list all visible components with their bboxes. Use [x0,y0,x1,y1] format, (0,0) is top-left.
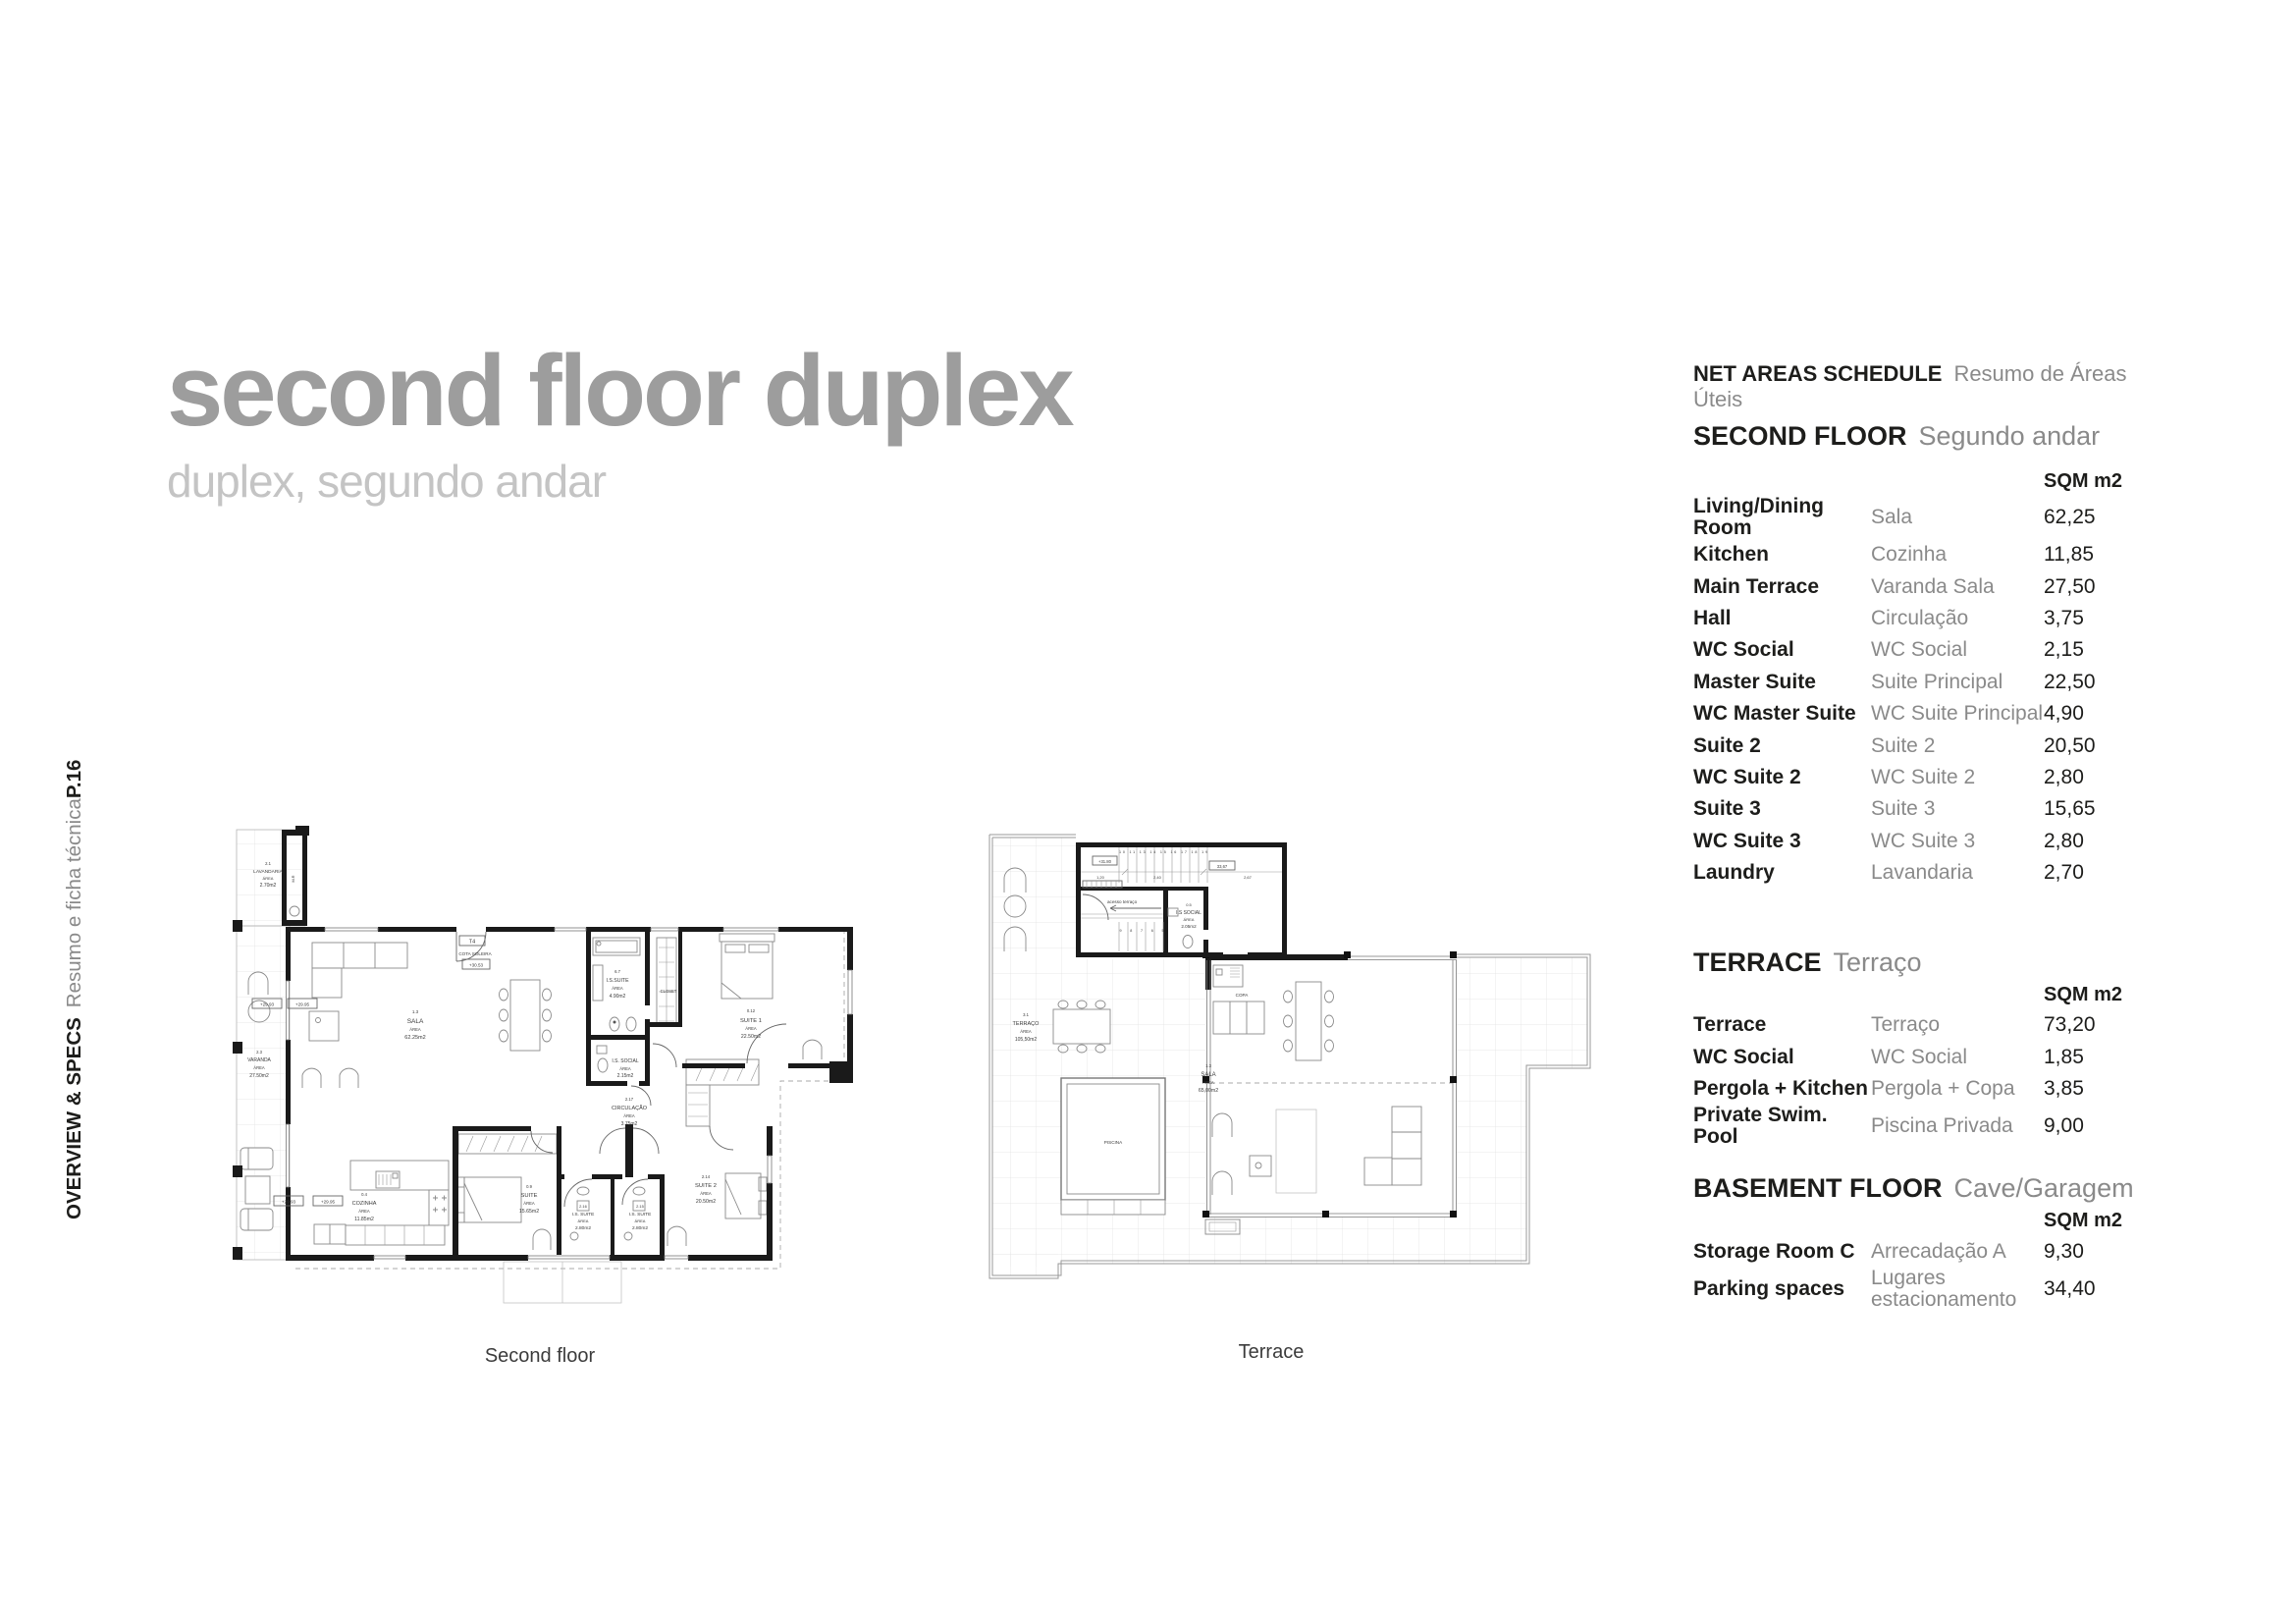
section-name-pt: Cave/Garagem [1954,1173,2134,1203]
svg-text:I.S. SOCIAL: I.S. SOCIAL [612,1058,638,1064]
row-area-value: 2,80 [2044,767,2145,788]
svg-text:ÁREA: ÁREA [409,1027,421,1032]
table-row: WC Suite 3 WC Suite 3 2,80 [1693,826,2145,857]
svg-text:0.12: 0.12 [747,1008,756,1013]
row-label-en: Private Swim. Pool [1693,1105,1871,1148]
section-header-terrace: TERRACETerraço [1693,947,2145,978]
svg-text:ÁREA: ÁREA [619,1066,631,1071]
row-label-pt: Sala [1871,507,2044,528]
svg-text:2.80m2: 2.80m2 [575,1225,591,1231]
cota-level: +30.53 [469,963,484,968]
svg-text:ÁREA: ÁREA [1020,1029,1032,1034]
stair-numbers-up: 10 11 13 14 15 16 17 18 19 [1119,850,1207,854]
svg-text:ÁREA: ÁREA [358,1209,370,1214]
row-label-pt: Circulação [1871,608,2044,629]
cota-soleira-label: COTA SOLEIRA [458,951,492,956]
basement-rows: Storage Room C Arrecadação A 9,30 Parkin… [1693,1235,2145,1310]
row-area-value: 62,25 [2044,507,2145,528]
svg-text:2.15: 2.15 [636,1204,645,1209]
svg-text:2.3: 2.3 [256,1050,262,1055]
row-label-pt: WC Suite 2 [1871,767,2044,788]
row-area-value: 9,30 [2044,1241,2145,1263]
row-area-value: 4,90 [2044,703,2145,725]
row-area-value: 2,80 [2044,831,2145,852]
section-name-pt: Segundo andar [1919,421,2101,451]
row-area-value: 27,50 [2044,576,2145,598]
svg-text:2.15m2: 2.15m2 [617,1073,634,1079]
table-row: WC Social WC Social 2,15 [1693,634,2145,666]
svg-text:SUITE 2: SUITE 2 [695,1183,717,1189]
row-label-pt: Pergola + Copa [1871,1078,2044,1100]
svg-text:2.14: 2.14 [702,1174,711,1179]
row-label-en: Laundry [1693,862,1871,884]
room-label-social: I.S SOCIAL [1176,910,1201,916]
dim-total: 33,67 [1217,864,1228,869]
level-marker: +29.95 [321,1200,336,1205]
room-label-copa: COPA [1236,993,1250,998]
row-label-pt: Arrecadação A [1871,1241,2044,1263]
row-label-en: Kitchen [1693,544,1871,566]
table-row: Suite 3 Suite 3 15,65 [1693,793,2145,825]
net-areas-schedule: NET AREAS SCHEDULEResumo de Áreas Úteis … [1693,361,2145,1311]
room-label-piscina: PISCINA [1104,1140,1123,1145]
sidebar-section-label-pt: Resumo e ficha técnica [63,798,86,1007]
svg-text:22.50m2: 22.50m2 [741,1034,761,1040]
svg-text:3.75m2: 3.75m2 [621,1121,638,1127]
row-label-pt: Cozinha [1871,544,2044,566]
table-row: Main Terrace Varanda Sala 27,50 [1693,570,2145,602]
svg-text:SUITE: SUITE [520,1193,537,1199]
row-area-value: 2,70 [2044,862,2145,884]
row-label-pt: Terraço [1871,1014,2044,1036]
room-label-is-suite3: 2.15 I.S. SUITE ÁREA 2.80m2 [629,1204,652,1231]
svg-text:I.S. SUITE: I.S. SUITE [572,1212,595,1218]
row-label-en: Parking spaces [1693,1278,1871,1300]
svg-text:ÁREA: ÁREA [623,1113,635,1118]
row-label-en: Pergola + Kitchen [1693,1078,1871,1100]
sidebar-vertical-text: OVERVIEW & SPECS Resumo e ficha técnica … [63,776,92,1219]
level-marker: +29.93 [282,1200,296,1205]
svg-text:ÁREA: ÁREA [635,1218,646,1223]
svg-text:VARANDA: VARANDA [247,1057,271,1063]
svg-text:11.85m2: 11.85m2 [354,1217,374,1222]
svg-text:LAVANDARIA: LAVANDARIA [253,869,283,875]
row-label-pt: WC Suite 3 [1871,831,2044,852]
svg-text:27.50m2: 27.50m2 [249,1073,269,1079]
table-row: Terrace Terraço 73,20 [1693,1009,2145,1041]
title-block: second floor duplex duplex, segundo anda… [167,340,1072,508]
row-label-en: WC Suite 3 [1693,831,1871,852]
room-label-is-suite2: 2.16 I.S. SUITE ÁREA 2.80m2 [572,1204,595,1231]
dim-1: 1,20 [1096,875,1105,880]
acesso-terraco-label: acesso terraço [1107,899,1138,904]
row-label-pt: Varanda Sala [1871,576,2044,598]
stair-numbers-down: 9 8 7 6 5 [1120,929,1164,933]
unit-header: SQM m2 [1693,1210,2145,1232]
walls [282,826,853,1261]
svg-text:ÁREA: ÁREA [612,986,623,991]
svg-text:15.65m2: 15.65m2 [519,1209,539,1215]
table-row: Pergola + Kitchen Pergola + Copa 3,85 [1693,1073,2145,1105]
svg-text:I.S.SUITE: I.S.SUITE [606,978,629,984]
svg-text:1.3: 1.3 [1205,1063,1211,1068]
row-area-value: 22,50 [2044,672,2145,693]
svg-text:4.90m2: 4.90m2 [610,994,626,1000]
caption-second-floor: Second floor [442,1345,638,1368]
row-label-pt: WC Suite Principal [1871,703,2044,725]
room-label-social-area: 2.05m2 [1181,924,1197,929]
row-area-value: 11,85 [2044,544,2145,566]
row-label-en: WC Suite 2 [1693,767,1871,788]
table-row: Kitchen Cozinha 11,85 [1693,539,2145,570]
row-label-pt: Lavandaria [1871,862,2044,884]
room-label-suite1: 0.12 SUITE 1 ÁREA 22.50m2 [740,1008,762,1040]
row-label-pt: Suite 2 [1871,735,2044,757]
row-area-value: 20,50 [2044,735,2145,757]
svg-text:1.3: 1.3 [412,1009,419,1014]
svg-text:ÁREA: ÁREA [523,1201,535,1206]
second-floor-rows: Living/Dining Room Sala 62,25 Kitchen Co… [1693,496,2145,889]
row-area-value: 1,85 [2044,1047,2145,1068]
row-label-pt: Lugares estacionamento [1871,1268,2044,1311]
row-label-en: Living/Dining Room [1693,496,1871,539]
furniture [240,906,822,1303]
svg-text:0.9: 0.9 [526,1184,532,1189]
svg-text:2.1: 2.1 [265,861,271,866]
row-label-en: WC Social [1693,1047,1871,1068]
svg-text:SALA: SALA [1201,1072,1215,1078]
svg-text:2.16: 2.16 [579,1204,588,1209]
terrace-rows: Terrace Terraço 73,20 WC Social WC Socia… [1693,1009,2145,1148]
svg-text:COZINHA: COZINHA [352,1201,377,1207]
section-name: BASEMENT FLOOR [1693,1173,1943,1203]
section-name: TERRACE [1693,947,1822,977]
svg-text:105,50m2: 105,50m2 [1015,1037,1037,1043]
row-area-value: 9,00 [2044,1115,2145,1137]
svg-text:2.17: 2.17 [625,1097,634,1102]
unit-header: SQM m2 [1693,470,2145,493]
page-title: second floor duplex [167,340,1072,441]
dim-2: 2,40 [1153,875,1162,880]
floor-plan-terrace: +31.80 10 11 13 14 15 16 17 18 19 9 8 7 … [985,820,1632,1316]
svg-text:2.80m2: 2.80m2 [632,1225,648,1231]
level-marker: +29.93 [260,1002,275,1007]
row-label-pt: WC Social [1871,1047,2044,1068]
table-row: Hall Circulação 3,75 [1693,603,2145,634]
sidebar-section-label: OVERVIEW & SPECS [63,1017,86,1219]
section-name-pt: Terraço [1834,947,1922,977]
row-label-en: Suite 2 [1693,735,1871,757]
svg-text:SALA: SALA [407,1018,424,1025]
svg-text:2.70m2: 2.70m2 [260,883,277,889]
svg-text:TERRAÇO: TERRAÇO [1013,1021,1041,1027]
schedule-title: NET AREAS SCHEDULEResumo de Áreas Úteis [1693,361,2145,412]
table-row: WC Master Suite WC Suite Principal 4,90 [1693,698,2145,730]
room-label-is-suite-master: 6.7 I.S.SUITE ÁREA 4.90m2 [606,969,629,1000]
table-row: Private Swim. Pool Piscina Privada 9,00 [1693,1105,2145,1148]
room-label-cozinha: 0.4 COZINHA ÁREA 11.85m2 [352,1192,377,1222]
sidebar-page-number: P.16 [63,760,86,799]
table-row: Suite 2 Suite 2 20,50 [1693,730,2145,761]
row-area-value: 2,15 [2044,639,2145,661]
svg-text:ÁREA: ÁREA [700,1191,712,1196]
table-row: Laundry Lavandaria 2,70 [1693,857,2145,889]
room-label-is-social: I.S. SOCIAL ÁREA 2.15m2 [612,1058,638,1079]
svg-text:6.7: 6.7 [614,969,620,974]
row-label-en: Main Terrace [1693,576,1871,598]
svg-text:3.1: 3.1 [1023,1012,1029,1017]
schedule-title-en: NET AREAS SCHEDULE [1693,361,1942,386]
caption-terrace: Terrace [1173,1341,1369,1364]
row-area-value: 15,65 [2044,798,2145,820]
row-label-pt: Suite 3 [1871,798,2044,820]
svg-text:SUITE 1: SUITE 1 [740,1018,762,1024]
table-row: Living/Dining Room Sala 62,25 [1693,496,2145,539]
svg-text:ÁREA: ÁREA [1202,1080,1214,1085]
room-label-suite2: 2.14 SUITE 2 ÁREA 20.50m2 [695,1174,717,1205]
table-row: Master Suite Suite Principal 22,50 [1693,667,2145,698]
section-name: SECOND FLOOR [1693,421,1907,451]
row-area-value: 3,75 [2044,608,2145,629]
svg-text:ÁREA: ÁREA [263,876,274,881]
row-label-pt: Piscina Privada [1871,1115,2044,1137]
room-label-closet: CLOSET [661,989,677,994]
svg-text:ÁREA: ÁREA [745,1026,757,1031]
table-row: Parking spaces Lugares estacionamento 34… [1693,1268,2145,1311]
room-label-mr: M.R [292,875,295,882]
row-label-en: Hall [1693,608,1871,629]
svg-text:CIRCULAÇÃO: CIRCULAÇÃO [612,1105,648,1111]
room-label-circulacao: 2.17 CIRCULAÇÃO ÁREA 3.75m2 [612,1097,648,1127]
floor-plan-second-floor: T4 COTA SOLEIRA +30.53 +29.93 +29.95 +29… [229,818,888,1321]
svg-text:I.S. SUITE: I.S. SUITE [629,1212,652,1218]
table-row: Storage Room C Arrecadação A 9,30 [1693,1235,2145,1267]
row-label-en: Master Suite [1693,672,1871,693]
unit-header: SQM m2 [1693,984,2145,1006]
table-row: WC Suite 2 WC Suite 2 2,80 [1693,762,2145,793]
svg-text:0.4: 0.4 [361,1192,367,1197]
row-label-en: Terrace [1693,1014,1871,1036]
dim-3: 2,67 [1244,875,1253,880]
row-label-en: WC Master Suite [1693,703,1871,725]
row-label-en: Suite 3 [1693,798,1871,820]
row-label-pt: WC Social [1871,639,2044,661]
row-area-value: 3,85 [2044,1078,2145,1100]
svg-text:62.25m2: 62.25m2 [404,1035,425,1041]
svg-text:20.50m2: 20.50m2 [696,1199,716,1205]
table-row: WC Social WC Social 1,85 [1693,1042,2145,1073]
level-marker: +29.95 [295,1002,310,1007]
section-header-second-floor: SECOND FLOORSegundo andar [1693,421,2145,452]
svg-text:ÁREA: ÁREA [253,1065,265,1070]
row-label-en: WC Social [1693,639,1871,661]
terrace-level: +31.80 [1098,859,1112,864]
row-label-pt: Suite Principal [1871,672,2044,693]
room-label-suite3: 0.9 SUITE ÁREA 15.65m2 [519,1184,539,1215]
svg-text:65,00m2: 65,00m2 [1199,1088,1218,1094]
row-area-value: 73,20 [2044,1014,2145,1036]
t4-tag: T4 [469,940,475,946]
room-label-sala: 1.3 SALA ÁREA 62.25m2 [404,1009,425,1041]
row-area-value: 34,40 [2044,1278,2145,1300]
svg-text:ÁREA: ÁREA [578,1218,589,1223]
area-word: ÁREA [1184,917,1195,922]
page-subtitle: duplex, segundo andar [167,455,1072,508]
pool: PISCINA [1061,1078,1165,1215]
room-labels: 2.1 LAVANDARIA ÁREA 2.70m2 M.R 1.3 SALA … [247,861,762,1231]
section-header-basement: BASEMENT FLOORCave/Garagem [1693,1173,2145,1204]
room-label-social-num: 0.5 [1186,902,1192,907]
row-label-en: Storage Room C [1693,1241,1871,1263]
